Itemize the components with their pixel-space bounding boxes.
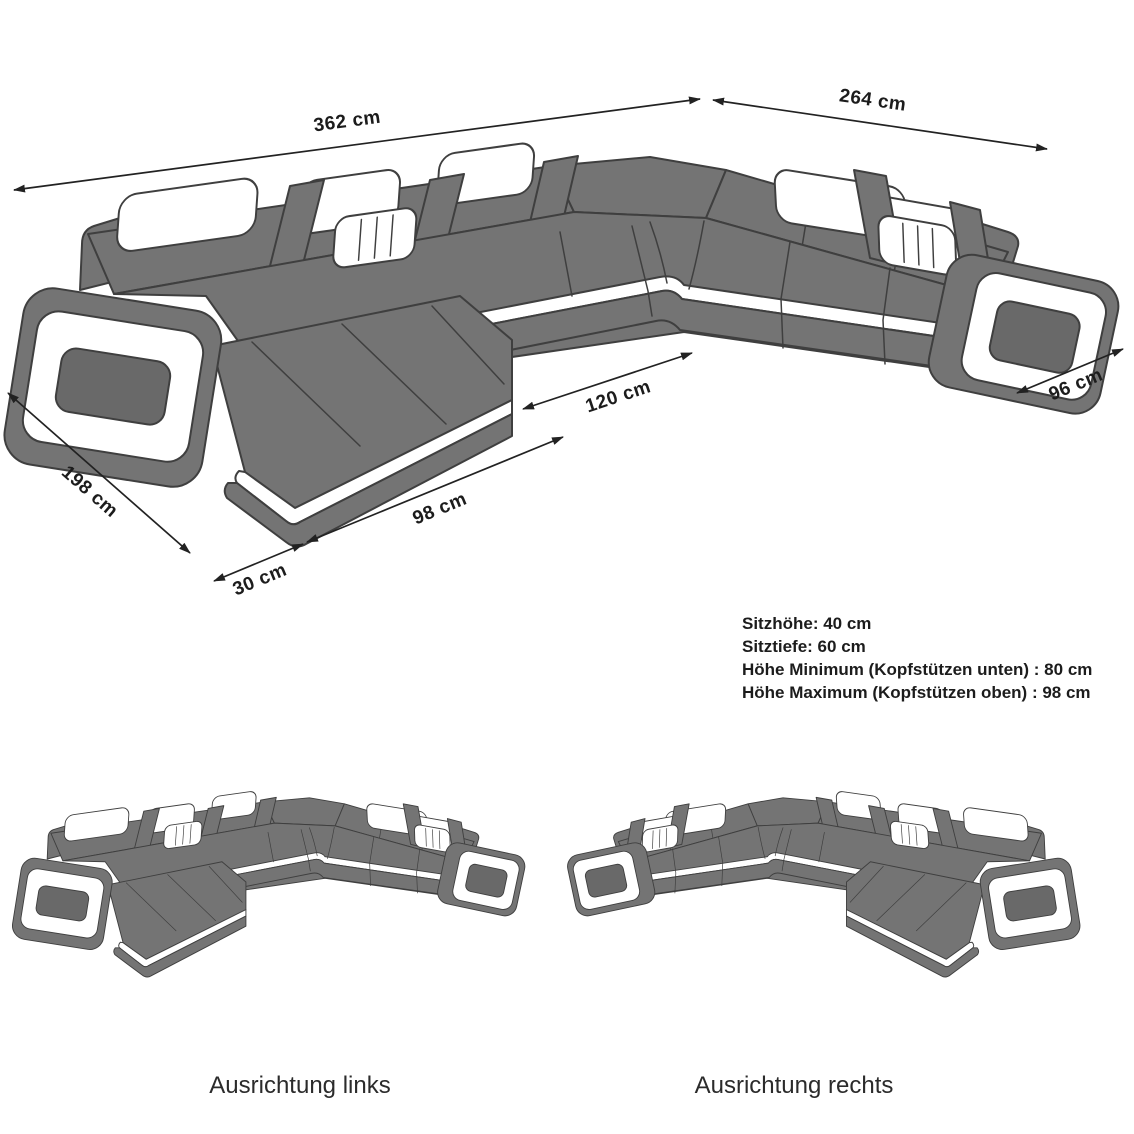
variant-right-sofa xyxy=(565,791,1082,977)
dimension-label-chaise-offset: 30 cm xyxy=(230,559,290,600)
spec-text-block: Sitzhöhe: 40 cm Sitztiefe: 60 cm Höhe Mi… xyxy=(742,612,1132,704)
spec-height-min: Höhe Minimum (Kopfstützen unten) : 80 cm xyxy=(742,658,1132,681)
variant-left-sofa xyxy=(10,791,527,977)
dimension-label-total-width: 362 cm xyxy=(312,107,382,137)
spec-height-max: Höhe Maximum (Kopfstützen oben) : 98 cm xyxy=(742,681,1132,704)
sofa-dimension-diagram: 362 cm 264 cm 96 cm 120 cm 198 cm 30 cm … xyxy=(0,0,1134,1134)
dimension-label-chaise-width: 98 cm xyxy=(410,489,470,530)
dimension-label-right-width: 264 cm xyxy=(838,85,908,116)
variant-left-label: Ausrichtung links xyxy=(150,1072,450,1100)
spec-seat-depth: Sitztiefe: 60 cm xyxy=(742,635,1132,658)
product-dimension-sheet: 362 cm 264 cm 96 cm 120 cm 198 cm 30 cm … xyxy=(0,0,1134,1134)
spec-seat-height: Sitzhöhe: 40 cm xyxy=(742,612,1132,635)
dimension-label-inner-opening: 120 cm xyxy=(583,376,654,417)
variant-right-label: Ausrichtung rechts xyxy=(644,1072,944,1100)
main-sofa xyxy=(0,142,1123,547)
